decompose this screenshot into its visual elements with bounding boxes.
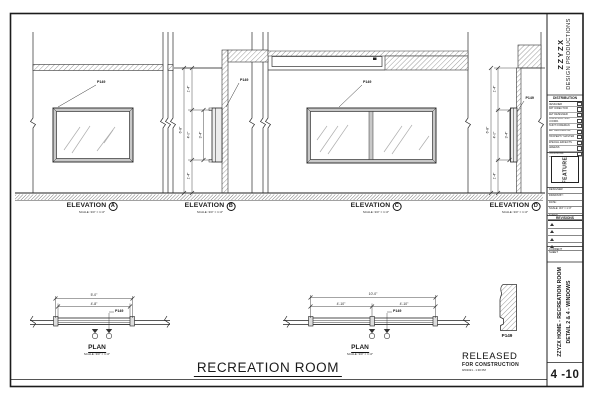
distribution-name: LOCATIONS xyxy=(549,153,564,156)
dim-label: 4'-0" xyxy=(493,132,496,139)
datum-markers xyxy=(369,329,389,338)
dim-label: 6'-8" xyxy=(486,127,489,134)
floor-band xyxy=(15,193,545,200)
revision-delta-icon xyxy=(550,230,554,233)
revision-row xyxy=(548,236,582,243)
project-title-block: ZZYZX HOME - RECREATION ROOM DETAIL 2 & … xyxy=(547,262,583,362)
revision-delta-icon xyxy=(550,223,554,226)
caption-letter-bubble: D xyxy=(531,202,540,211)
revision-delta-icon xyxy=(550,238,554,241)
revision-row xyxy=(548,229,582,236)
dim-label: 1'-4" xyxy=(493,173,496,180)
checkbox xyxy=(577,113,581,117)
revision-row xyxy=(548,221,582,228)
caption-label: ELEVATION xyxy=(490,203,530,210)
molding-label: P149 xyxy=(502,334,513,339)
project-line1: ZZYZX HOME - RECREATION ROOM xyxy=(558,267,563,357)
drawing-sheet: P149 P149 P149 P149 6'-8" 1'-4" 4'-0" 3'… xyxy=(0,0,600,400)
sheet-linework xyxy=(0,0,600,400)
caption-letter-bubble: C xyxy=(392,202,401,211)
distribution-name: SET DESIGNER xyxy=(549,114,568,117)
molding-profile xyxy=(500,285,517,331)
dim-label: 4'-0" xyxy=(187,132,190,139)
window-trim-callout: P149 xyxy=(363,81,371,85)
dim-label: 4'-8" xyxy=(91,303,98,306)
scale-note: SCALE: 3/4" = 1'-0" xyxy=(502,211,528,214)
window-trim-callout: P149 xyxy=(240,79,248,83)
caption-letter-bubble: B xyxy=(226,202,235,211)
dim-label: 4'-10" xyxy=(400,303,409,306)
dim-label: 1'-4" xyxy=(187,86,190,93)
feature-label: FEATURE xyxy=(562,156,568,183)
dim-label: 10'-0" xyxy=(369,293,378,296)
distribution-name: PROPERTY MASTER xyxy=(549,136,575,139)
plan-2-drawing xyxy=(283,295,470,339)
caption-label: ELEVATION xyxy=(351,203,391,210)
distribution-block: DISTRIBUTION PRODUCTION DESIGNER ART DIR… xyxy=(549,96,582,157)
room-title: RECREATION ROOM xyxy=(194,361,342,377)
dim-label: 1'-4" xyxy=(187,173,190,180)
project-line2: DETAIL 2 & 4 - WINDOWS xyxy=(567,281,572,344)
checkbox xyxy=(577,124,581,128)
checkbox xyxy=(577,141,581,145)
checkbox xyxy=(577,135,581,139)
revisions-block: REVISIONS xyxy=(548,216,582,251)
window-trim-callout: P149 xyxy=(97,81,105,85)
dim-label: 3'-4" xyxy=(505,132,508,139)
dim-label: 5'-0" xyxy=(91,294,98,297)
elevation-d-window-section xyxy=(511,101,525,162)
checkbox xyxy=(577,102,581,106)
dim-label: 1'-4" xyxy=(493,86,496,93)
scale-note: SCALE: 3/4" = 1'-0" xyxy=(79,211,105,214)
sill-callout: P149 xyxy=(115,310,123,314)
dim-label: 3'-4" xyxy=(199,132,202,139)
checkbox xyxy=(577,130,581,134)
scale-note: SCALE: 3/4" = 1'-0" xyxy=(197,211,223,214)
plan-1-drawing xyxy=(30,296,170,339)
sill-callout: P149 xyxy=(393,310,401,314)
checkbox xyxy=(577,119,581,123)
current-line2: SHEET xyxy=(549,251,582,255)
caption-label: ELEVATION xyxy=(67,203,107,210)
elevation-c-window xyxy=(307,85,436,163)
company-block: ZZYZX DESIGN PRODUCTIONS xyxy=(547,13,583,95)
released-date: 9/6/2021 - 1:30 PM xyxy=(462,369,519,372)
current-sheet-box: CURRENT SHEET xyxy=(548,248,582,255)
datum-markers xyxy=(92,329,111,338)
window-trim-callout: P149 xyxy=(526,97,534,101)
released-line1: RELEASED xyxy=(462,352,519,362)
checkbox xyxy=(577,146,581,150)
dim-label: 6'-8" xyxy=(179,127,182,134)
distribution-name: CONSTRUCTION COORD. xyxy=(549,118,578,123)
feature-box: FEATURE xyxy=(551,156,579,183)
distribution-name: PRODUCTION DESIGNER xyxy=(549,102,578,107)
scale-note: SCALE: 3/4" = 1'-0" xyxy=(363,211,389,214)
distribution-name: SET DECORATOR xyxy=(549,130,571,133)
company-tagline: DESIGN PRODUCTIONS xyxy=(567,18,573,90)
scale-note: SCALE: 3/4" = 1'-0" xyxy=(347,353,373,356)
distribution-name: ART DIRECTOR xyxy=(549,108,568,111)
caption-letter-bubble: A xyxy=(108,202,117,211)
caption-label: ELEVATION xyxy=(185,203,225,210)
released-line2: FOR CONSTRUCTION xyxy=(462,363,519,368)
scale-note: SCALE: 3/4" = 1'-0" xyxy=(84,353,110,356)
sheet-number: 4 -10 xyxy=(547,363,583,386)
released-stamp: RELEASED FOR CONSTRUCTION 9/6/2021 - 1:3… xyxy=(462,352,519,371)
distribution-name: PAINT FOREMAN xyxy=(549,125,570,128)
dim-label: 4'-10" xyxy=(337,303,346,306)
elevation-a-window xyxy=(53,85,133,162)
checkbox xyxy=(577,107,581,111)
distribution-name: SPECIAL EFFECTS xyxy=(549,142,572,145)
company-name: ZZYZX xyxy=(557,38,565,69)
distribution-name: GREENS xyxy=(549,147,560,150)
